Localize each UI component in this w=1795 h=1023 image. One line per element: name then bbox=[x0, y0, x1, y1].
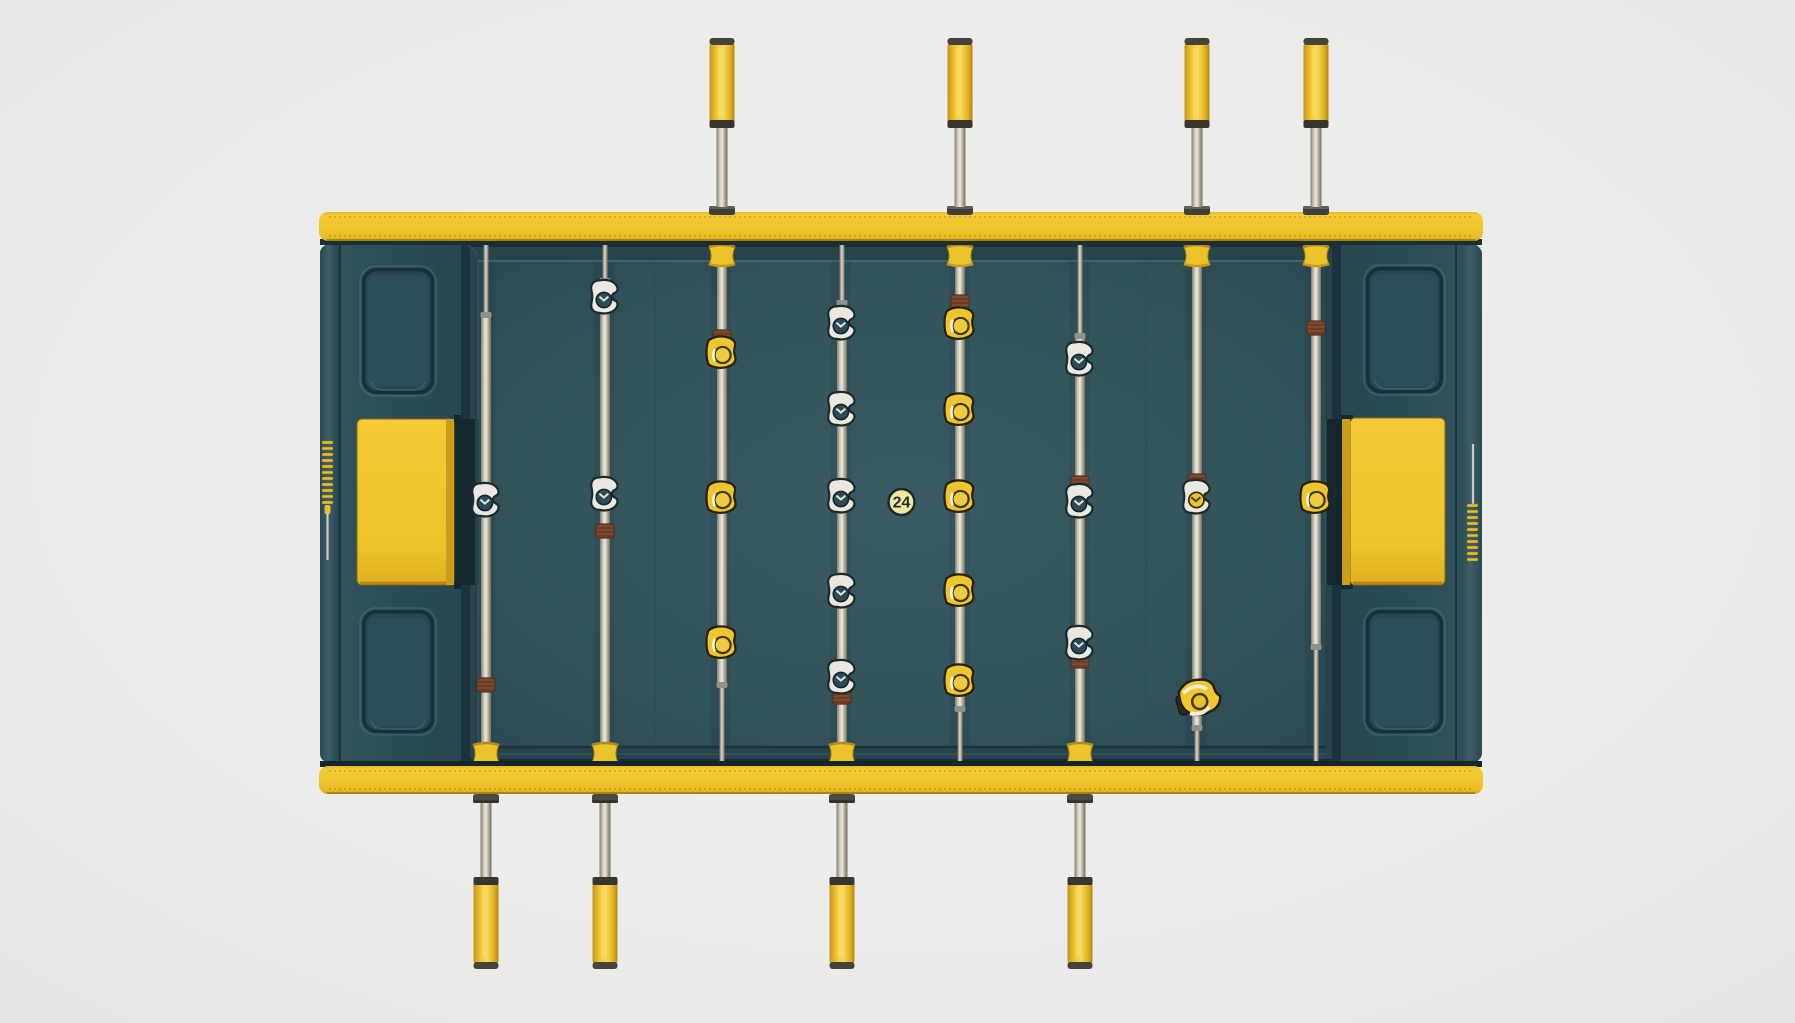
svg-text:24: 24 bbox=[893, 495, 911, 512]
